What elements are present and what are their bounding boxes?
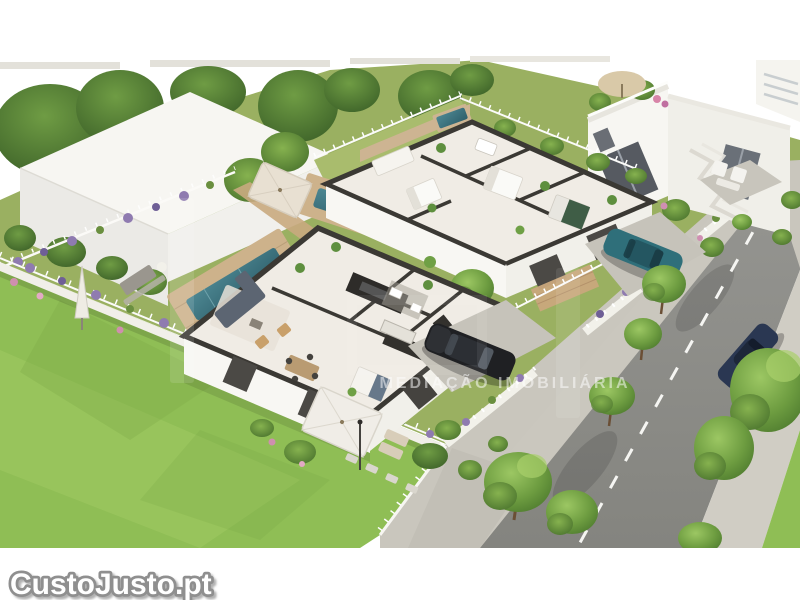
distant-wall (350, 58, 460, 64)
tree-cluster (694, 416, 754, 480)
verge-bush (488, 436, 508, 452)
watermark-logo-bar (556, 268, 580, 418)
distant-wall (150, 60, 330, 67)
distant-wall (0, 62, 120, 69)
roof-flowers (653, 95, 661, 103)
watermark-logo-bar (170, 198, 194, 383)
far-right-building (756, 60, 800, 122)
verge-bush (458, 460, 482, 480)
aerial-render: MEDIAÇÃO IMOBILIÁRIA CustoJusto.pt (0, 0, 800, 600)
top-margin (0, 0, 800, 56)
render-canvas: MEDIAÇÃO IMOBILIÁRIA CustoJusto.pt (0, 0, 800, 600)
watermark-center-text: MEDIAÇÃO IMOBILIÁRIA (379, 372, 630, 392)
distant-wall (470, 56, 610, 62)
brand-logo: CustoJusto.pt (10, 568, 212, 600)
